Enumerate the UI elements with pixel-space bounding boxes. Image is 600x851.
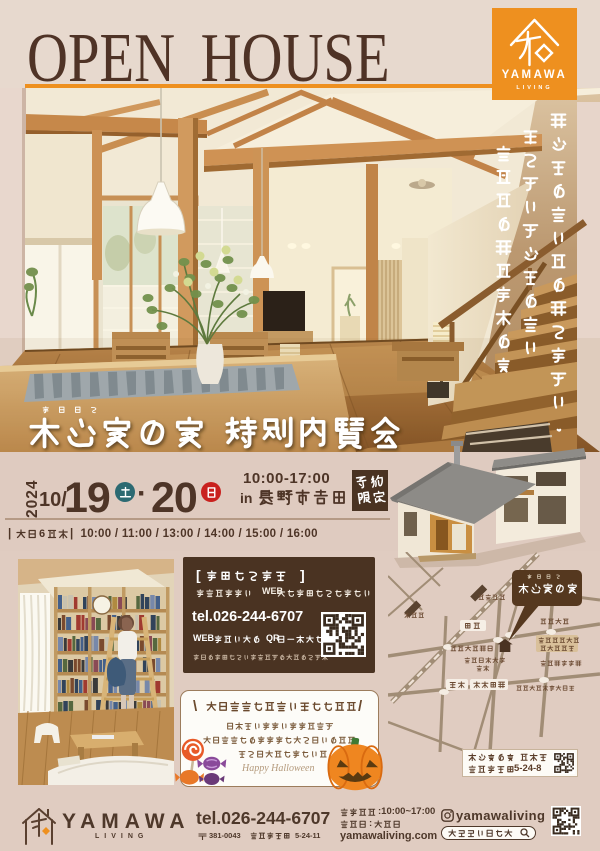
svg-text:YAMAWA: YAMAWA [502,69,568,81]
svg-text:LIVING: LIVING [516,85,552,91]
